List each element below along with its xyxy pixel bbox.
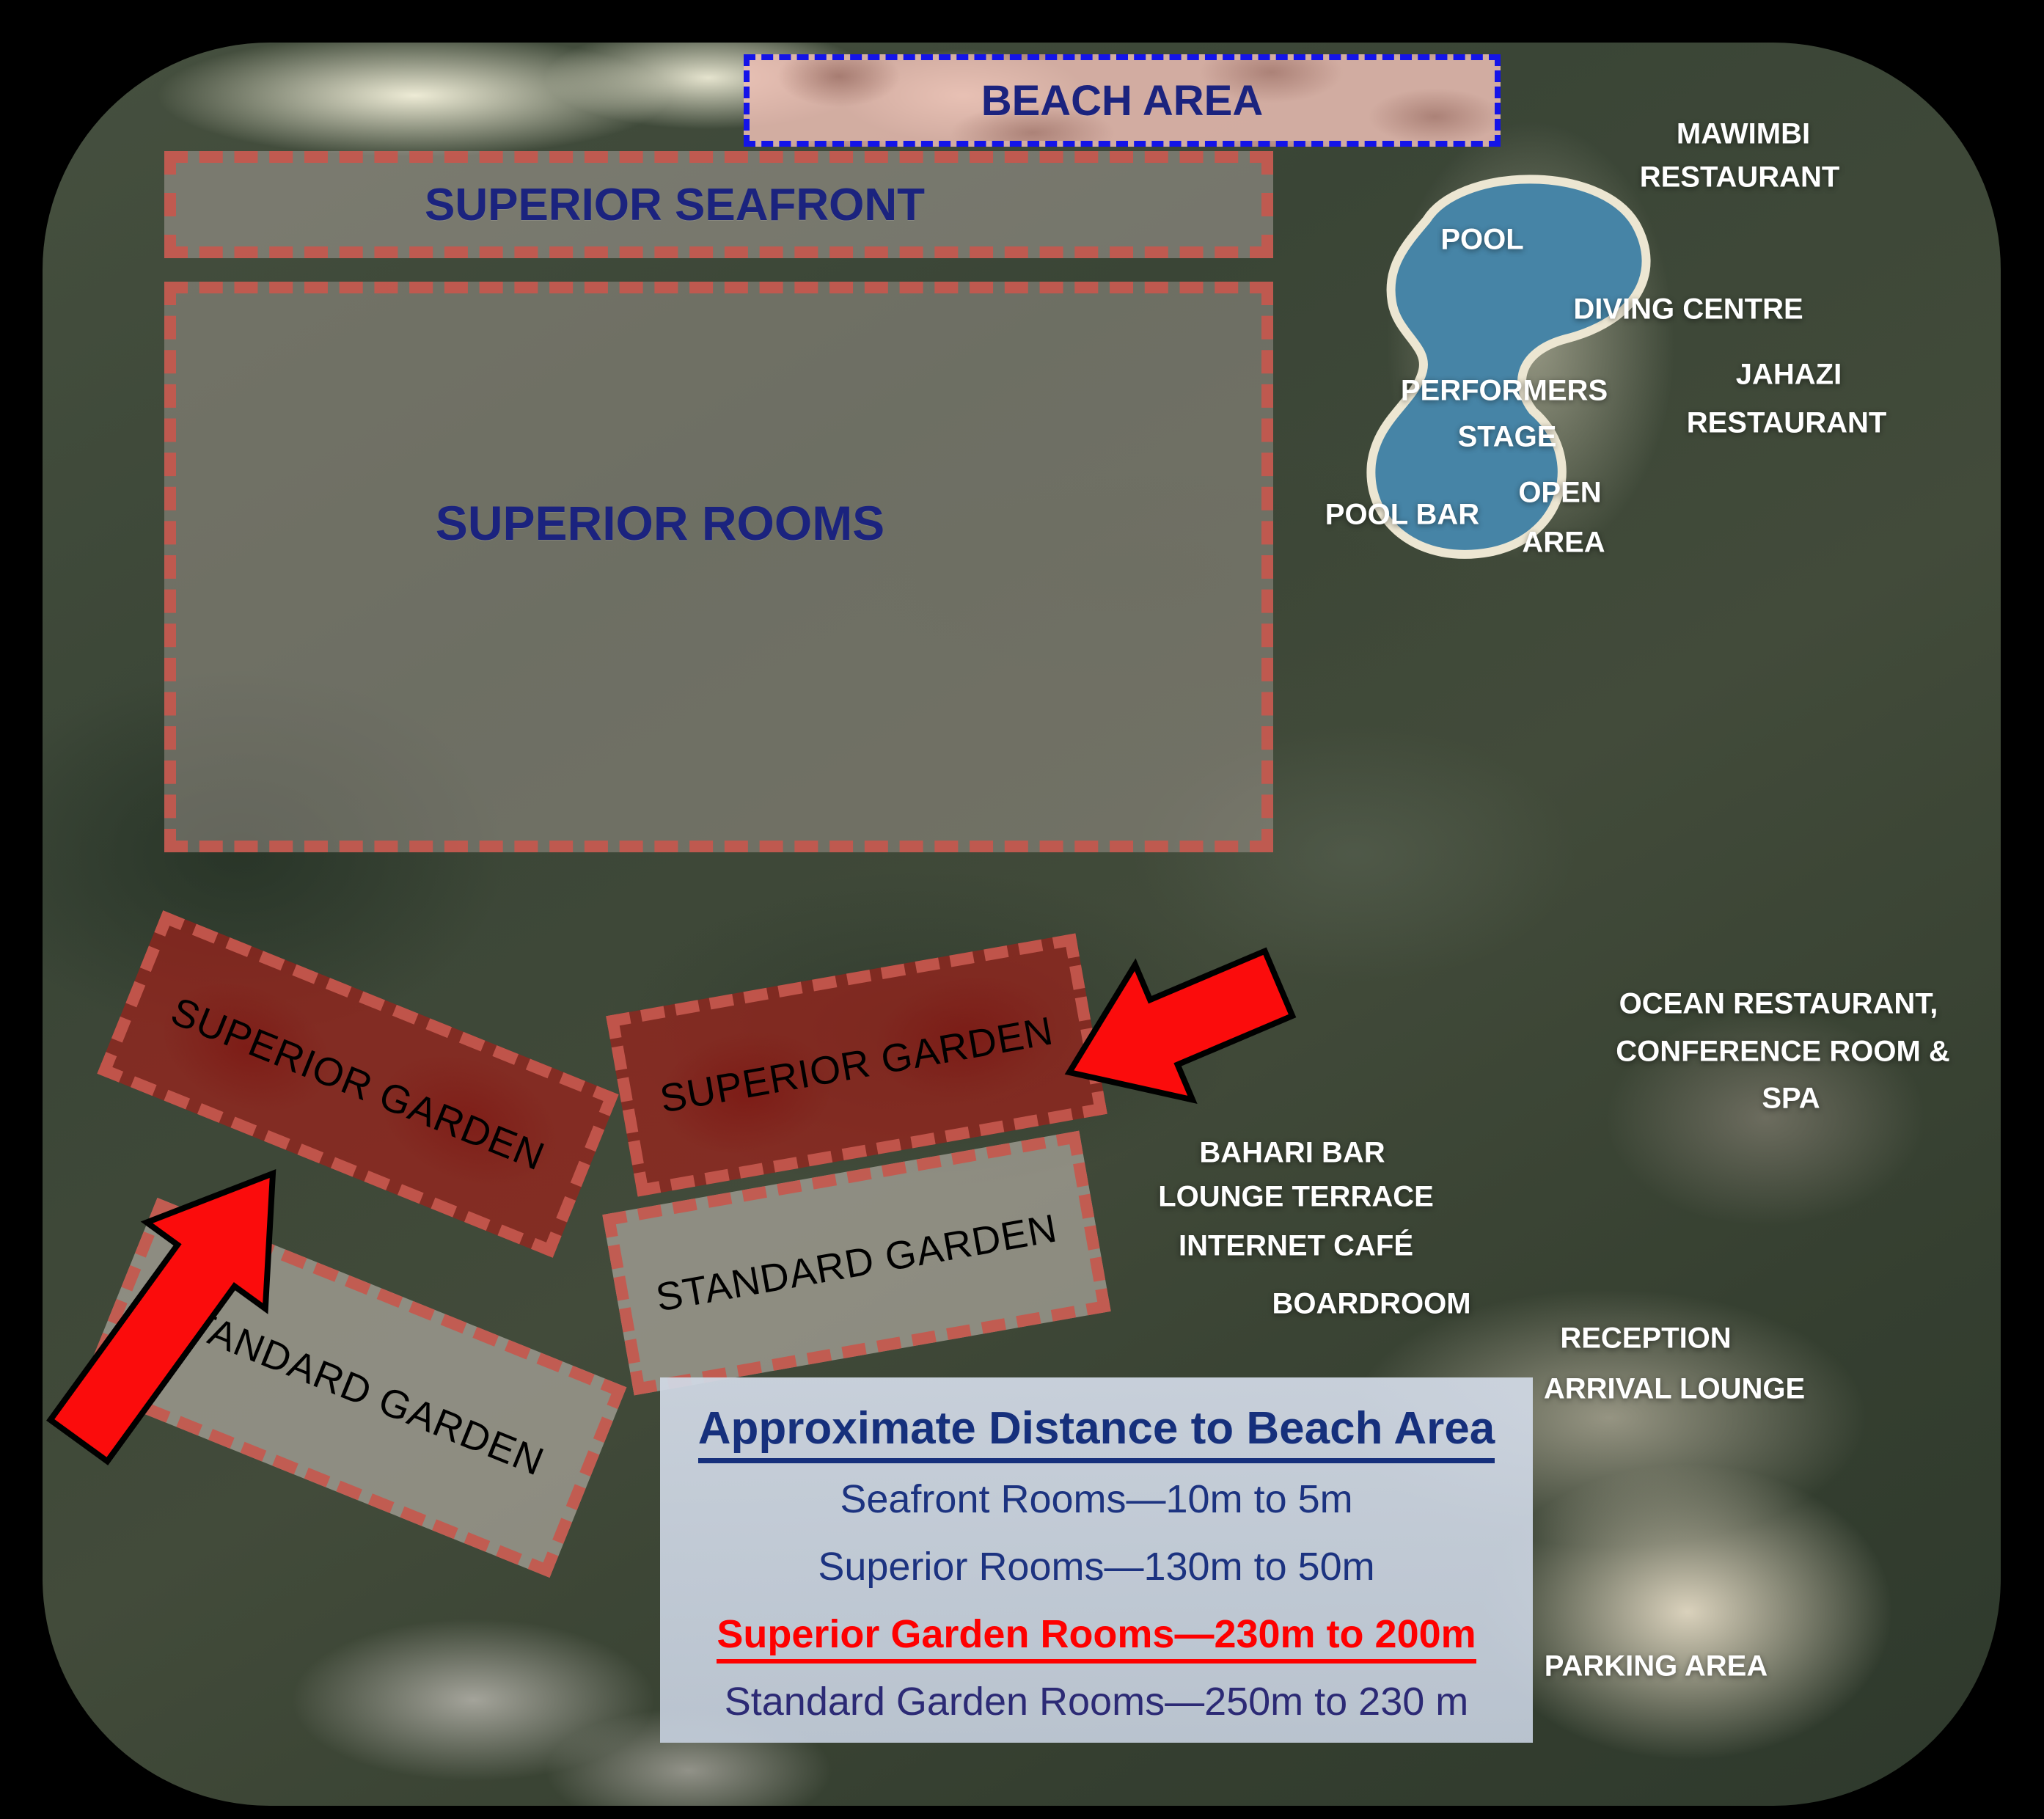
legend-title: Approximate Distance to Beach Area — [698, 1402, 1495, 1454]
legend-row-seafront: Seafront Rooms—10m to 5m — [840, 1476, 1352, 1522]
facility-label-ocean-line3: SPA — [1762, 1083, 1820, 1116]
legend-row-standard-garden: Standard Garden Rooms—250m to 230 m — [725, 1679, 1469, 1724]
zone-label-superior-seafront: SUPERIOR SEAFRONT — [425, 179, 925, 231]
facility-label-boardroom: BOARDROOM — [1272, 1288, 1470, 1321]
facility-label-reception: RECEPTION — [1560, 1322, 1731, 1355]
facility-label-internet-cafe: INTERNET CAFÉ — [1179, 1230, 1413, 1263]
facility-label-parking-area: PARKING AREA — [1545, 1650, 1768, 1683]
legend-row-seafront-text: Seafront Rooms—10m to 5m — [840, 1477, 1352, 1521]
facility-label-mawimbi-line2: RESTAURANT — [1640, 161, 1840, 194]
facility-label-mawimbi-line1: MAWIMBI — [1677, 118, 1810, 151]
zone-superior-seafront: SUPERIOR SEAFRONT — [164, 151, 1273, 258]
legend-row-superior-garden-text: Superior Garden Rooms—230m to 200m — [717, 1612, 1476, 1664]
facility-label-open: OPEN — [1518, 477, 1601, 510]
facility-label-lounge-terrace: LOUNGE TERRACE — [1158, 1181, 1434, 1214]
facility-label-ocean-line1: OCEAN RESTAURANT, — [1619, 988, 1938, 1021]
distance-legend: Approximate Distance to Beach Area Seafr… — [660, 1377, 1533, 1743]
facility-label-area: AREA — [1522, 527, 1605, 560]
facility-label-bahari-bar: BAHARI BAR — [1199, 1137, 1385, 1170]
facility-label-pool: POOL — [1440, 224, 1523, 257]
resort-map: BEACH AREA SUPERIOR SEAFRONT SUPERIOR RO… — [0, 0, 2044, 1819]
facility-label-performers: PERFORMERS — [1401, 375, 1608, 408]
facility-label-ocean-line2: CONFERENCE ROOM & — [1616, 1036, 1950, 1069]
legend-title-text: Approximate Distance to Beach Area — [698, 1403, 1495, 1463]
legend-row-superior-garden: Superior Garden Rooms—230m to 200m — [717, 1611, 1476, 1657]
zone-label-beach-area: BEACH AREA — [981, 76, 1264, 125]
zone-label-superior-garden-right: SUPERIOR GARDEN — [656, 1008, 1057, 1121]
facility-label-stage: STAGE — [1458, 421, 1557, 454]
zone-label-standard-garden-right: STANDARD GARDEN — [653, 1205, 1061, 1320]
facility-label-diving-centre: DIVING CENTRE — [1573, 293, 1803, 326]
facility-label-arrival-lounge: ARRIVAL LOUNGE — [1544, 1373, 1805, 1406]
legend-row-superior: Superior Rooms—130m to 50m — [818, 1544, 1374, 1589]
facility-label-jahazi-line2: RESTAURANT — [1687, 407, 1887, 440]
legend-row-standard-garden-text: Standard Garden Rooms—250m to 230 m — [725, 1680, 1469, 1724]
facility-label-jahazi-line1: JAHAZI — [1736, 359, 1842, 392]
zone-superior-rooms: SUPERIOR ROOMS — [164, 282, 1273, 852]
legend-row-superior-text: Superior Rooms—130m to 50m — [818, 1545, 1374, 1589]
zone-label-superior-rooms: SUPERIOR ROOMS — [436, 495, 884, 551]
facility-label-pool-bar: POOL BAR — [1325, 499, 1479, 532]
zone-beach-area: BEACH AREA — [744, 54, 1501, 147]
